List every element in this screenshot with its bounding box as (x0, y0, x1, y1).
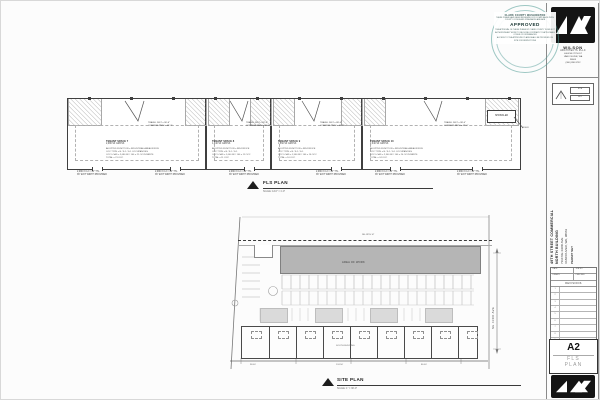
unit-door (440, 331, 451, 339)
title-underline (263, 188, 433, 189)
exit-door (170, 167, 181, 171)
sheet-number-box: A2 FLS PLAN (549, 339, 598, 374)
travel-note: TRAVEL DIST = 96'-6" COMMON PATH = 48'-3… (148, 122, 172, 128)
column-marker (172, 97, 175, 100)
unit-door (413, 331, 424, 339)
revision-number: 5 (551, 312, 560, 317)
exit-width: 36" EXIT WIDTH PROVIDED (316, 174, 346, 177)
tenant-info: TOTAL = 21 OCC (106, 157, 200, 160)
project-line: VANCOUVER, WA, 98661 (564, 114, 568, 264)
exit-door (92, 167, 103, 171)
project-line: PERMIT SET (570, 114, 574, 264)
firm-logo (551, 375, 595, 398)
floor-plan-title: FLS PLAN (263, 180, 288, 185)
tenant-area: 2,340 SF GROSS (370, 143, 470, 146)
travel-note: TRAVEL DIST = 88'-4" COMMON PATH = 44'-2… (320, 122, 344, 128)
unit-door (278, 331, 289, 339)
landscape-island (370, 308, 398, 323)
unit-divider (377, 327, 378, 358)
column-marker (298, 97, 301, 100)
landscape-island (260, 308, 288, 323)
exit-note: 2,080 X 0.2 = 14" TTL 36" EXIT WIDTH PRO… (316, 171, 346, 177)
unit-divider (458, 327, 459, 358)
south-building-footprint (241, 326, 478, 359)
sheet-number: A2 (550, 341, 597, 354)
stamp-review-text: THESE PLANS HAVE BEEN REVIEWED FOR COMPL… (495, 17, 555, 22)
floor-plan-scale: SCALE: 1/16" = 1'-0" (263, 190, 285, 193)
riser-label: RISER (522, 127, 529, 130)
exit-width: 36" EXIT WIDTH PROVIDED (375, 174, 405, 177)
tenant-info: TOTAL = 24 OCC (370, 157, 470, 160)
tenant-block: TENANT SPACE 10 2,340 SF GROSS ADOPTED F… (370, 140, 470, 160)
site-plan: NE 49TH ST AREA OF WORK SOUTH BUILDING 9… (216, 211, 508, 375)
tenant-area: 1,560 SF GROSS (278, 143, 354, 146)
common-path: COMMON PATH = 44'-2" (320, 125, 344, 128)
travel-note: TRAVEL DIST = 98'-0" COMMON PATH = 49'-0… (444, 122, 468, 128)
unit-door (251, 331, 262, 339)
tenant-block: TENANT SPACE 9 1,560 SF GROSS ADOPTED FU… (278, 140, 354, 160)
column-marker (256, 97, 259, 100)
revision-number: 8 (551, 332, 560, 337)
unit-divider (350, 327, 351, 358)
travel-note: TRAVEL DIST = 82'-0" COMMON PATH = 41'-0… (246, 122, 270, 128)
north-arrow-icon (247, 181, 259, 189)
unit-divider (431, 327, 432, 358)
column-marker (508, 97, 511, 100)
stamp-text-panel: CLARK COUNTY WASHINGTON THESE PLANS HAVE… (494, 12, 556, 44)
sheet-name: PLAN (550, 363, 597, 369)
revision-number: 7 (551, 325, 560, 330)
column-marker (382, 97, 385, 100)
unit-door (467, 331, 478, 339)
exit-width: 36" EXIT WIDTH PROVIDED (229, 174, 259, 177)
revision-number: 6 (551, 319, 560, 324)
revision-number: 1 (551, 287, 560, 292)
dim-label: 86.00' (421, 364, 427, 367)
job-cell: JOB NO (574, 268, 596, 273)
drawing-sheet: TRAVEL DIST = 96'-6" COMMON PATH = 48'-3… (0, 0, 600, 400)
exit-note: 2,080 X 0.2 = 14" TTL 36" EXIT WIDTH PRO… (77, 171, 107, 177)
landscape-island (425, 308, 453, 323)
stamp-access-note: ACCESS TO THE APPROVED PLANS SHALL BE PR… (495, 37, 555, 42)
street-centerline (238, 240, 492, 241)
revision-table: DATE JOB NO DRAWN CHECKED REVISIONS 1 2 … (550, 267, 597, 344)
street-top-label: NE 49TH ST (362, 234, 374, 237)
exit-door (244, 167, 255, 171)
floor-plan: TRAVEL DIST = 96'-6" COMMON PATH = 48'-3… (67, 98, 521, 170)
roof-icon (555, 88, 568, 101)
exit-door (472, 167, 483, 171)
tenant-area: 1,040 SF GROSS (212, 143, 266, 146)
unit-door (359, 331, 370, 339)
unit-door (332, 331, 343, 339)
column-marker (340, 97, 343, 100)
exit-width: 36" EXIT WIDTH PROVIDED (457, 174, 487, 177)
south-building-label: SOUTH BUILDING (336, 345, 355, 348)
stamp-approved: APPROVED (495, 22, 555, 28)
revision-number: 3 (551, 300, 560, 305)
street-right-label: NE 43RD AVE (491, 273, 495, 329)
tenant-block: TENANT SPACE 8 1,040 SF GROSS ADOPTED FU… (212, 140, 266, 160)
landscape-island (315, 308, 343, 323)
column-marker (130, 97, 133, 100)
tenant-block: TENANT SPACE 7 2,080 SF GROSS ADOPTED FU… (106, 140, 200, 160)
exit-door (390, 167, 401, 171)
key-tag: SITE (570, 87, 590, 94)
sprinkler-label: SPRINKLER (495, 115, 508, 118)
common-path: COMMON PATH = 41'-0" (246, 125, 270, 128)
unit-divider (323, 327, 324, 358)
date-cell: DATE (551, 268, 574, 273)
stamp-disclaimer: THE APPROVAL OF THESE PLANS BY CLARK COU… (495, 29, 555, 36)
tenant-info: TOTAL = 11 OCC (212, 157, 266, 160)
drawn-cell: DRAWN (551, 274, 574, 279)
title-underline (337, 385, 521, 386)
unit-divider (296, 327, 297, 358)
dim-label: 124.50' (336, 364, 343, 367)
unit-door (305, 331, 316, 339)
common-path: COMMON PATH = 49'-0" (444, 125, 468, 128)
column-marker (214, 97, 217, 100)
column-marker (88, 97, 91, 100)
approval-stamp: CLARK COUNTY WASHINGTON THESE PLANS HAVE… (489, 3, 561, 81)
common-path: COMMON PATH = 48'-3" (148, 125, 172, 128)
exit-note: 2,080 X 0.2 = 14" TTL 36" EXIT WIDTH PRO… (155, 171, 185, 177)
site-key-box: SITE KEY (552, 83, 594, 105)
exit-door (331, 167, 342, 171)
exit-note: 2,080 X 0.2 = 14" TTL 36" EXIT WIDTH PRO… (229, 171, 259, 177)
north-arrow-icon (322, 378, 334, 386)
column-marker (424, 97, 427, 100)
tenant-area: 2,080 SF GROSS (106, 143, 200, 146)
unit-door (386, 331, 397, 339)
project-title: 49TH STREET COMMERCIAL NORTH BUILDING 71… (550, 114, 596, 264)
exit-note: 2,080 X 0.2 = 14" TTL 36" EXIT WIDTH PRO… (457, 171, 487, 177)
revision-number: 4 (551, 306, 560, 311)
unit-divider (404, 327, 405, 358)
site-plan-scale: SCALE: 1" = 30'-0" (337, 387, 357, 390)
exit-note: 2,080 X 0.2 = 14" TTL 36" EXIT WIDTH PRO… (375, 171, 405, 177)
tenant-info: TOTAL = 16 OCC (278, 157, 354, 160)
exit-width: 36" EXIT WIDTH PROVIDED (77, 174, 107, 177)
north-building-footprint (280, 246, 481, 274)
exit-width: 36" EXIT WIDTH PROVIDED (155, 174, 185, 177)
site-plan-title: SITE PLAN (337, 377, 364, 382)
key-tag: KEY (570, 95, 590, 102)
key-tags: SITE KEY (570, 87, 590, 101)
checked-cell: CHECKED (574, 274, 596, 279)
firm-logo-icon (551, 375, 595, 398)
unit-divider (269, 327, 270, 358)
revision-number: 2 (551, 293, 560, 298)
driveway (254, 245, 273, 258)
area-of-work-label: AREA OF WORK (342, 261, 365, 264)
dim-label: 98.00' (250, 364, 256, 367)
column-marker (466, 97, 469, 100)
